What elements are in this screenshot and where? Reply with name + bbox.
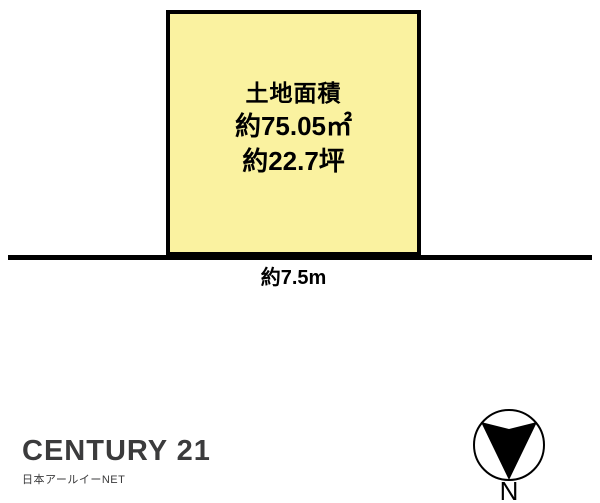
compass-north-icon: N xyxy=(471,407,547,503)
century21-logo-subtext: 日本アールイーNET xyxy=(22,471,211,487)
land-plot-diagram: 土地面積 約75.05㎡ 約22.7坪 約7.5m CENTURY 21 日本ア… xyxy=(0,0,600,503)
century21-logo-text: CENTURY 21 xyxy=(22,436,211,468)
road-width-label: 約7.5m xyxy=(166,261,421,290)
compass-n-label: N xyxy=(500,476,519,503)
land-plot: 土地面積 約75.05㎡ 約22.7坪 xyxy=(166,10,421,256)
plot-area-sqm: 約75.05㎡ xyxy=(170,108,417,145)
plot-title: 土地面積 xyxy=(170,78,417,108)
plot-area-tsubo: 約22.7坪 xyxy=(170,145,417,177)
compass-needle xyxy=(481,422,537,480)
compass: N xyxy=(471,407,547,503)
road-line xyxy=(8,255,592,260)
century21-logo: CENTURY 21 日本アールイーNET xyxy=(22,436,211,487)
